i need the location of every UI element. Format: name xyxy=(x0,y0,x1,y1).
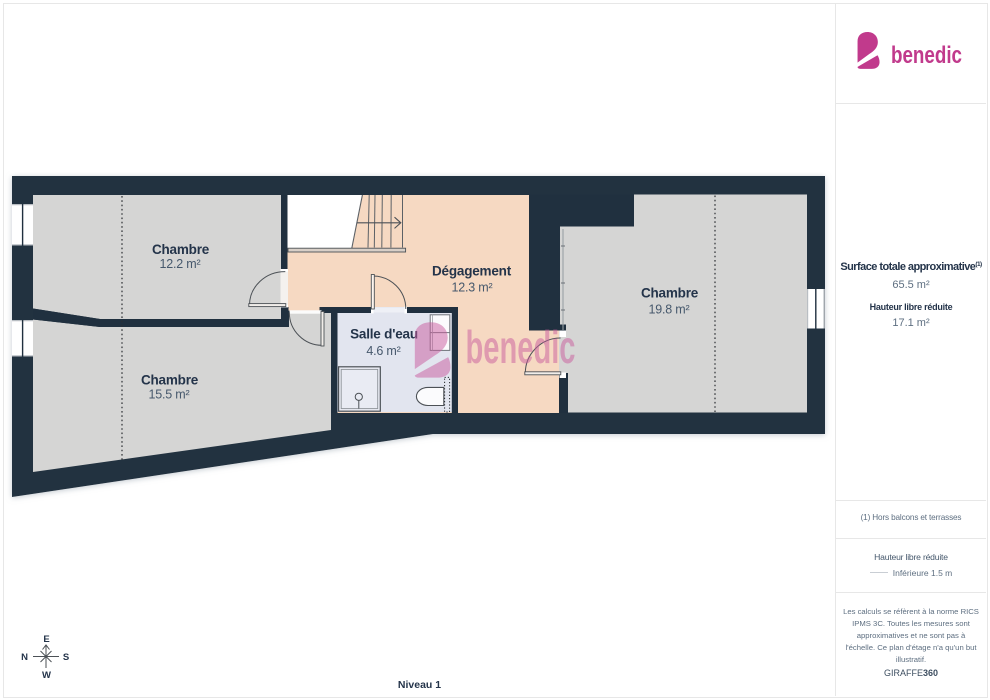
svg-text:Dégagement: Dégagement xyxy=(432,263,512,278)
svg-text:4.6 m²: 4.6 m² xyxy=(366,344,400,358)
svg-text:12.3 m²: 12.3 m² xyxy=(452,280,493,294)
svg-text:Chambre: Chambre xyxy=(641,286,699,301)
svg-text:W: W xyxy=(42,670,51,681)
svg-text:N: N xyxy=(21,652,28,663)
svg-text:benedic: benedic xyxy=(466,321,576,373)
svg-text:Salle d'eau: Salle d'eau xyxy=(350,327,418,342)
svg-text:Chambre: Chambre xyxy=(152,242,210,257)
svg-text:19.8 m²: 19.8 m² xyxy=(649,303,690,317)
svg-text:12.2 m²: 12.2 m² xyxy=(160,257,201,271)
svg-text:Chambre: Chambre xyxy=(141,373,199,388)
svg-text:E: E xyxy=(43,634,49,645)
svg-text:benedic: benedic xyxy=(891,42,962,69)
svg-text:Niveau 1: Niveau 1 xyxy=(398,679,441,691)
svg-text:15.5 m²: 15.5 m² xyxy=(149,388,190,402)
svg-text:S: S xyxy=(63,652,69,663)
